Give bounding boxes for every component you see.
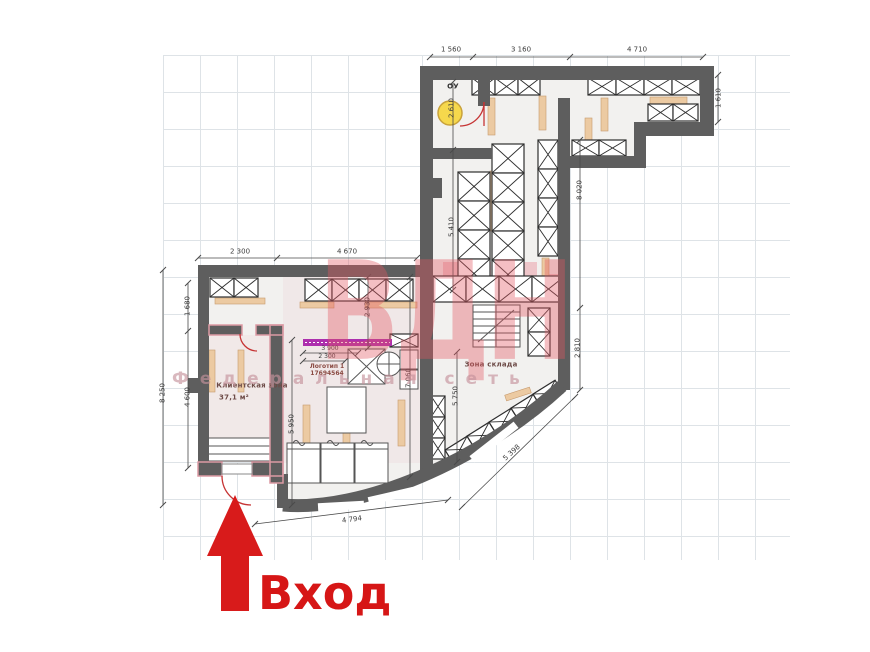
- floor-plan-page: 1 560 3 160 4 710 1 610 8 020 2 810 8 25…: [0, 0, 870, 652]
- entrance-arrow: [207, 495, 263, 611]
- entrance-arrow-svg: [0, 0, 870, 652]
- entrance-label: Вход: [258, 566, 392, 620]
